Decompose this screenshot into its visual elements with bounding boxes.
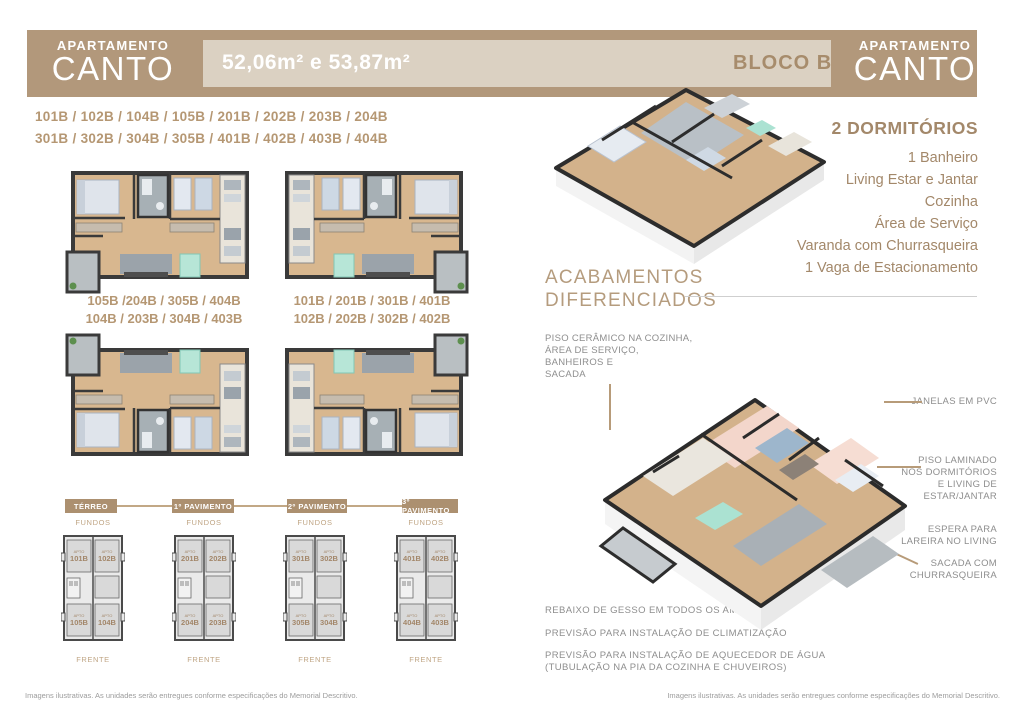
building-diagram-3pav: APTO 401B APTO 402B APTO 404B APTO 403B: [394, 530, 458, 649]
pavimento-pill-2: 2º PAVIMENTO: [287, 499, 347, 513]
iso-render-bottom: [583, 338, 923, 638]
pavimento-pill-1: 1º PAVIMENTO: [172, 499, 234, 513]
floorplan-top-left: [62, 168, 262, 296]
frente-label: FRENTE: [61, 655, 125, 664]
floorplan-bottom-right: [272, 331, 472, 459]
building-diagram-2pav: APTO 301B APTO 302B APTO 305B APTO 304B: [283, 530, 347, 649]
unit-number: 201B: [181, 554, 200, 563]
unit-number: 202B: [209, 554, 228, 563]
acabamentos-heading: ACABAMENTOS DIFERENCIADOS: [545, 266, 717, 312]
fundos-label: FUNDOS: [283, 518, 347, 527]
feature-item: PREVISÃO PARA INSTALAÇÃO DE AQUECEDOR DE…: [545, 650, 826, 662]
footer-disclaimer-left: Imagens ilustrativas. As unidades serão …: [25, 691, 358, 700]
area-label: 52,06m² e 53,87m²: [222, 51, 410, 75]
iso-render-top: [536, 50, 836, 268]
unit-number: 204B: [181, 618, 200, 627]
plan-label-right-bottom: 102B / 202B / 302B / 402B: [266, 311, 478, 326]
pavimento-connector-line: [66, 505, 456, 507]
unit-number: 105B: [70, 618, 89, 627]
building-diagram-terreo: APTO 101B APTO 102B APTO 105B APTO 104B: [61, 530, 125, 649]
unit-number-list: 101B / 102B / 104B / 105B / 201B / 202B …: [35, 106, 388, 150]
unit-number: 104B: [98, 618, 117, 627]
unit-number: 404B: [403, 618, 422, 627]
unit-number: 305B: [292, 618, 311, 627]
frente-label: FRENTE: [172, 655, 236, 664]
plan-label-right-top: 101B / 201B / 301B / 401B: [266, 293, 478, 308]
fundos-label: FUNDOS: [61, 518, 125, 527]
plan-label-left-bottom: 104B / 203B / 304B / 403B: [58, 311, 270, 326]
unit-number: 403B: [431, 618, 450, 627]
unit-list-line2: 301B / 302B / 304B / 305B / 401B / 402B …: [35, 128, 388, 150]
pavimento-pill-3: 3º PAVIMENTO: [402, 499, 458, 513]
plan-label-left-top: 105B /204B / 305B / 404B: [58, 293, 270, 308]
floorplan-bottom-left: [62, 331, 262, 459]
pavimento-pill-terreo: TÉRREO: [65, 499, 117, 513]
footer-disclaimer-right: Imagens ilustrativas. As unidades serão …: [667, 691, 1000, 700]
unit-number: 101B: [70, 554, 89, 563]
banner-left: APARTAMENTO CANTO: [48, 38, 178, 85]
unit-number: 203B: [209, 618, 228, 627]
floorplan-top-right: [272, 168, 472, 296]
callout-janelas: JANELAS EM PVC: [911, 396, 997, 408]
brochure-page: 52,06m² e 53,87m² BLOCO B APARTAMENTO CA…: [0, 0, 1024, 717]
fundos-label: FUNDOS: [394, 518, 458, 527]
acabamentos-line2: DIFERENCIADOS: [545, 289, 717, 312]
fundos-label: FUNDOS: [172, 518, 236, 527]
unit-number: 302B: [320, 554, 339, 563]
banner-right: APARTAMENTO CANTO: [850, 38, 980, 85]
acabamentos-divider: [685, 296, 977, 297]
unit-number: 102B: [98, 554, 117, 563]
building-diagram-1pav: APTO 201B APTO 202B APTO 204B APTO 203B: [172, 530, 236, 649]
frente-label: FRENTE: [283, 655, 347, 664]
banner-left-title: CANTO: [48, 53, 178, 85]
feature-item: (TUBULAÇÃO NA PIA DA COZINHA E CHUVEIROS…: [545, 662, 826, 674]
unit-number: 401B: [403, 554, 422, 563]
banner-right-title: CANTO: [850, 53, 980, 85]
unit-number: 301B: [292, 554, 311, 563]
unit-list-line1: 101B / 102B / 104B / 105B / 201B / 202B …: [35, 106, 388, 128]
unit-number: 402B: [431, 554, 450, 563]
frente-label: FRENTE: [394, 655, 458, 664]
acabamentos-line1: ACABAMENTOS: [545, 266, 717, 289]
unit-number: 304B: [320, 618, 339, 627]
